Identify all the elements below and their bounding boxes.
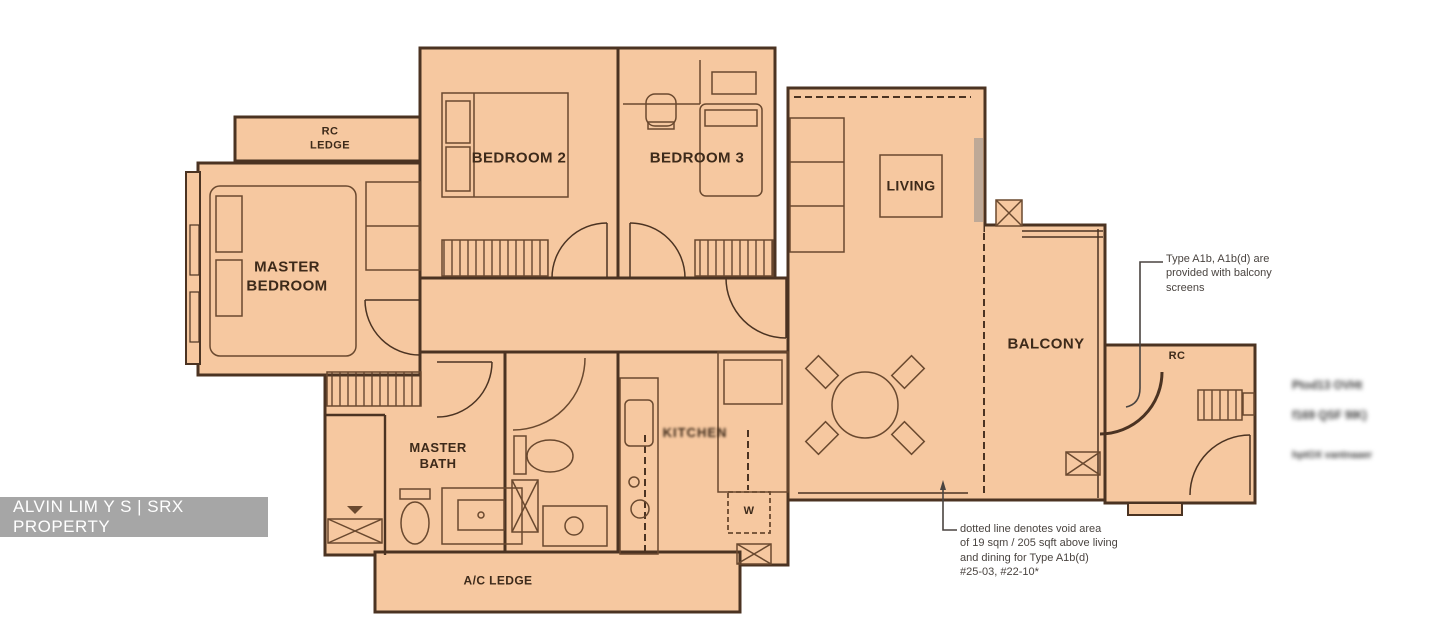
rc-bottom-notch [1128,503,1182,515]
master-wardrobe [327,372,421,406]
bedroom3-label: BEDROOM 3 [650,150,744,169]
rc-bottom-room [1105,345,1255,503]
rc-label: RC [1169,350,1186,364]
bedroom3-wardrobe [695,240,773,276]
master-bay-window [186,172,200,364]
foyer [420,278,790,352]
floorplan-drawing [0,0,1440,641]
bedroom2-wardrobe [442,240,548,276]
rc-ledge-label: RC LEDGE [310,125,350,153]
rc-vent-unit [1198,390,1242,420]
living-label: LIVING [886,177,935,195]
balcony-note: Type A1b, A1b(d) are provided with balco… [1166,252,1316,295]
obscured-line-3: hptOX vantnaaer [1292,450,1372,461]
living-window-strip [974,138,983,222]
watermark-text: ALVIN LIM Y S | SRX PROPERTY [13,497,268,537]
obscured-text: Ptod13 OVHt f169 QSF 9IK) hptOX vantnaae… [1292,364,1412,463]
bedroom2-label: BEDROOM 2 [472,150,566,169]
aircon-box-living [996,200,1022,226]
ac-ledge-label: A/C LEDGE [464,574,533,589]
floorplan-canvas: RC LEDGE MASTER BEDROOM BEDROOM 2 BEDROO… [0,0,1440,641]
master-bedroom-label: MASTER BEDROOM [246,258,327,296]
master-bath-label: MASTER BATH [409,440,466,473]
balcony-fill [985,225,1105,500]
washer-label: W [744,505,755,519]
balcony-label: BALCONY [1008,336,1085,355]
obscured-line-1: Ptod13 OVHt [1292,380,1362,392]
ac-ledge-room [375,552,740,612]
obscured-line-2: f169 QSF 9IK) [1292,410,1367,422]
void-note: dotted line denotes void area of 19 sqm … [960,522,1155,579]
kitchen-label: KITCHEN [663,425,728,441]
living-dining-fill [788,88,985,500]
watermark-bar: ALVIN LIM Y S | SRX PROPERTY [0,497,268,537]
